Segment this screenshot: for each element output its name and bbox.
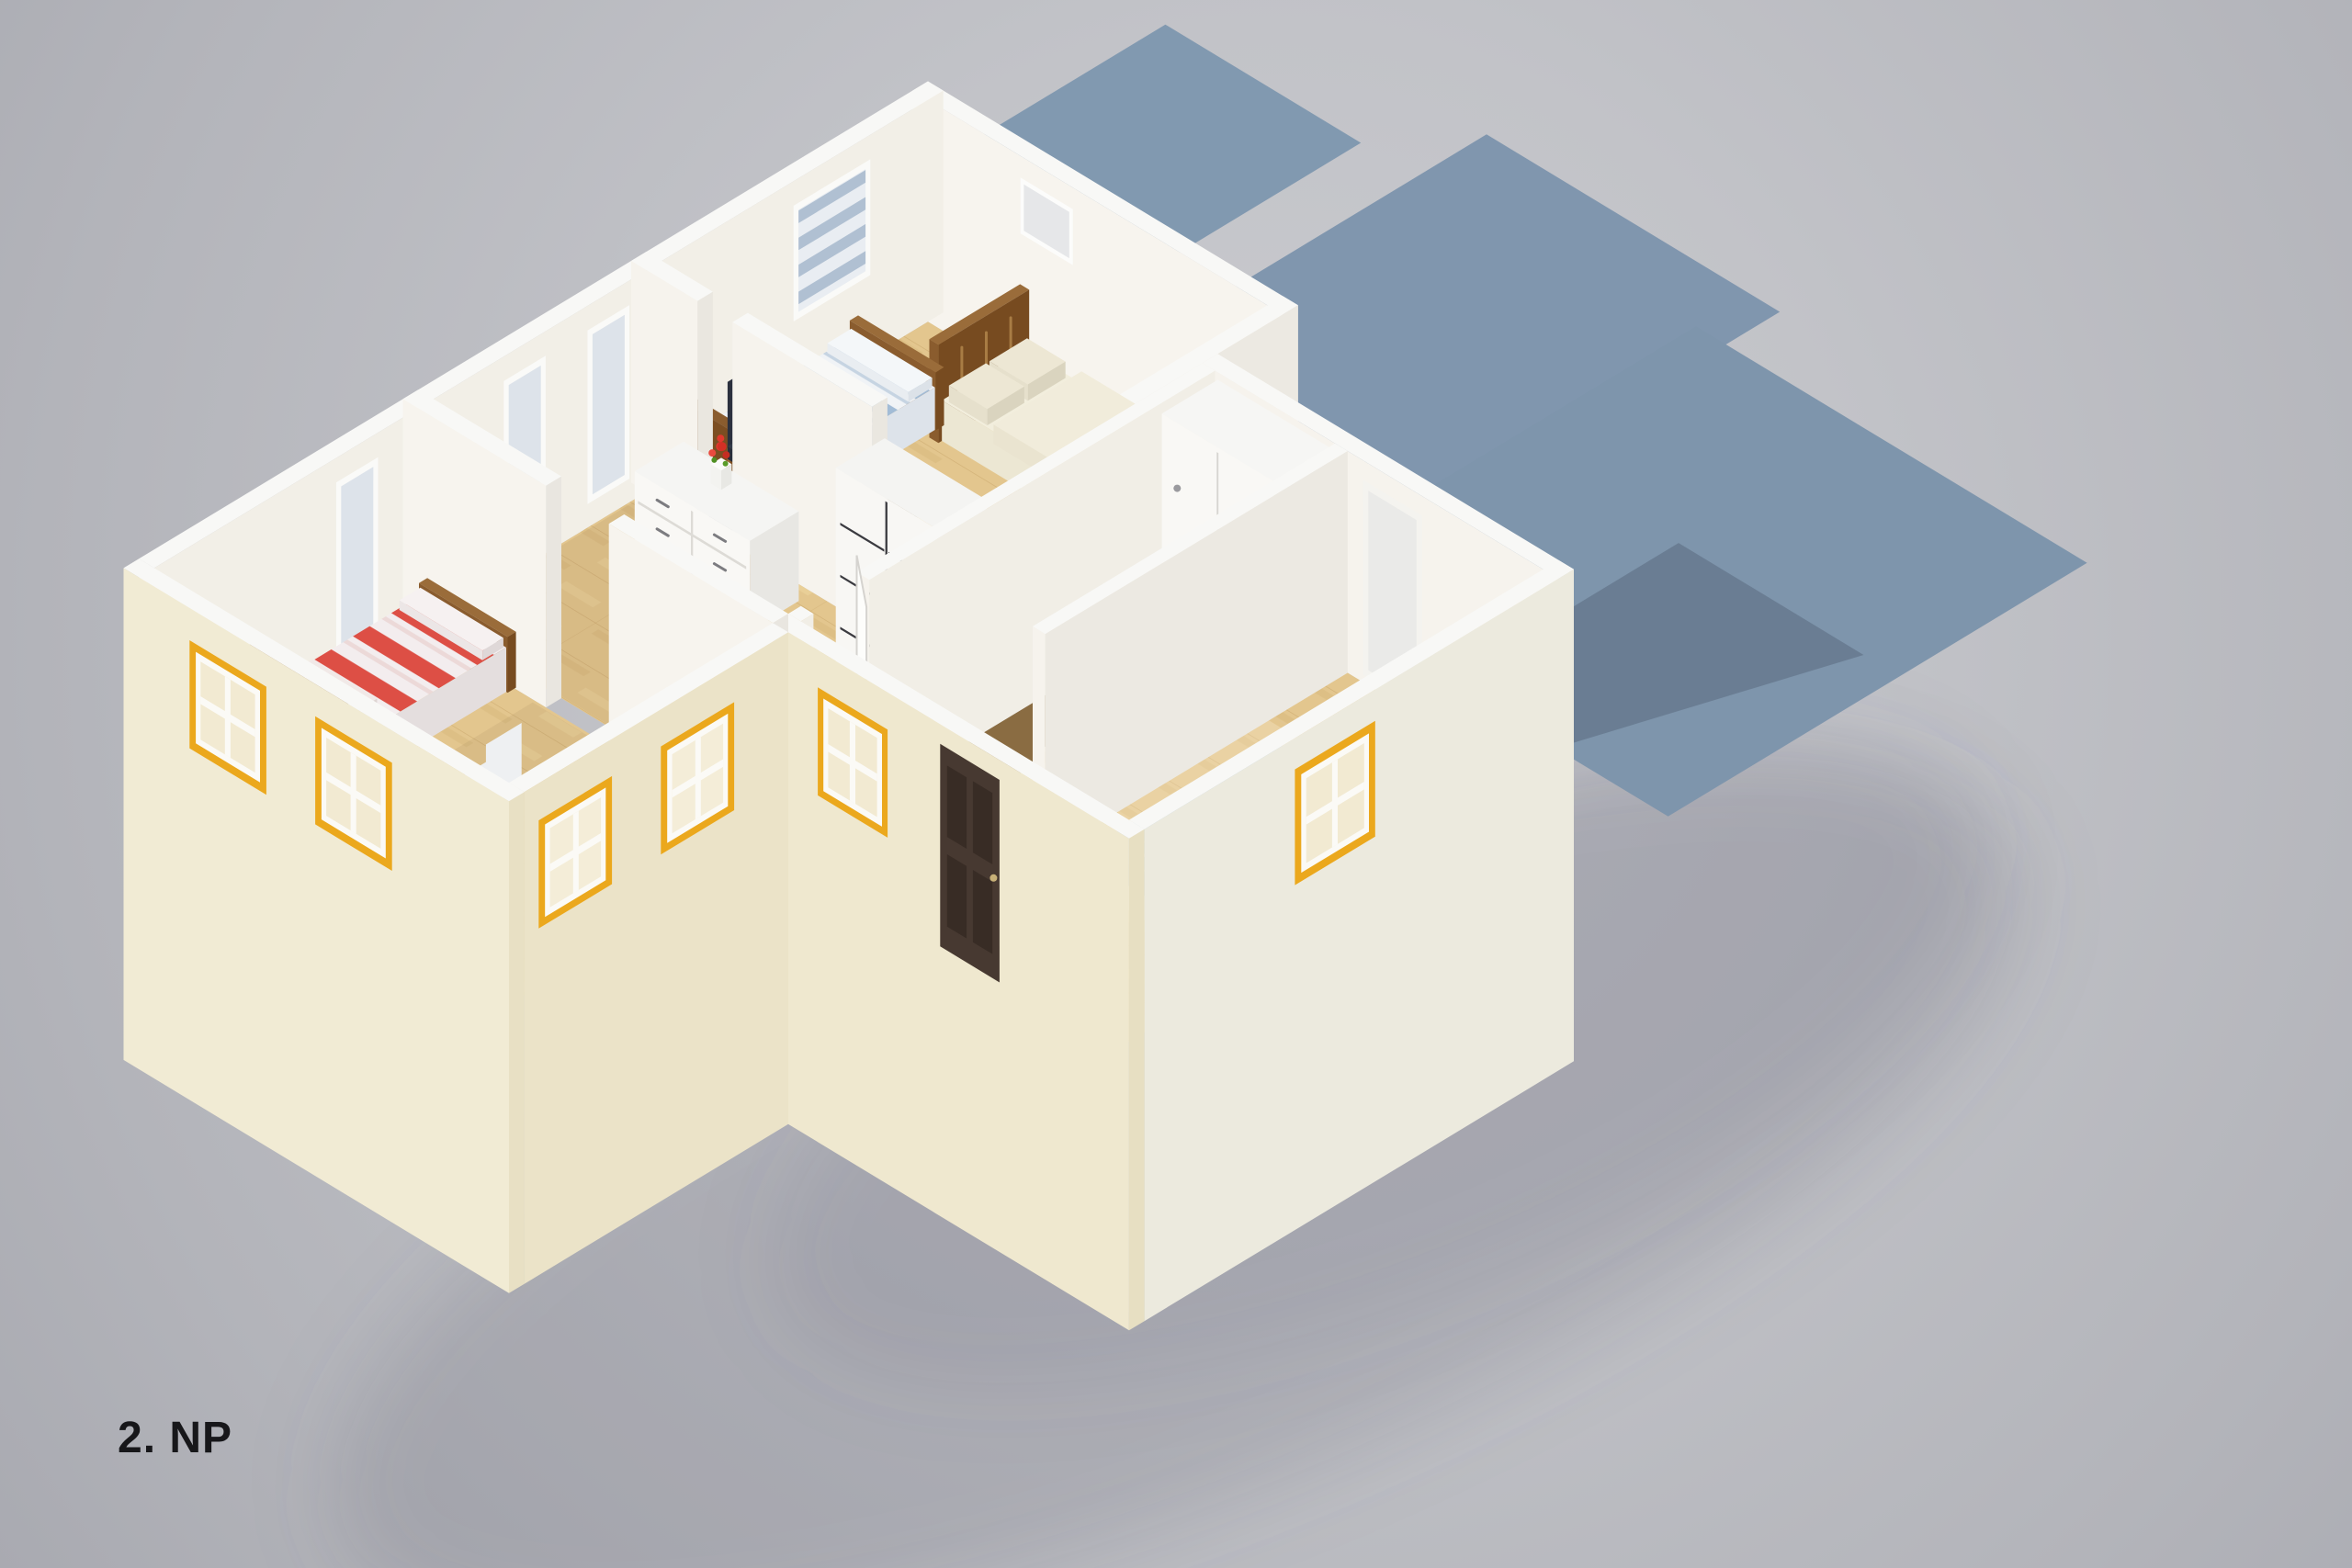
flower-leaf: [711, 457, 717, 463]
side-window-mullion: [695, 737, 701, 819]
master-window-mullion: [1332, 760, 1338, 848]
front-window-mullion: [351, 752, 356, 834]
tall-window-glass: [593, 315, 625, 495]
front-window-mullion: [225, 676, 231, 758]
flower-red: [718, 442, 727, 451]
flower-leaf: [723, 461, 729, 467]
entry-door-knob: [989, 874, 997, 882]
entry-door-panel: [973, 870, 992, 954]
entry-door-panel: [947, 854, 967, 939]
flower-red: [722, 451, 729, 458]
flower-red: [708, 449, 716, 457]
floorplan-stage: 2. NP: [0, 0, 2352, 1568]
floorplan-3d-render: [0, 0, 2352, 1568]
side-window-mullion: [573, 811, 579, 894]
floor-label: 2. NP: [118, 1413, 232, 1463]
flower-red: [717, 434, 724, 442]
coat-hook: [1173, 485, 1181, 492]
entry-door-panel: [973, 781, 992, 864]
entry-door-panel: [947, 765, 967, 849]
tall-window-glass: [341, 467, 373, 647]
hall-window-mullion: [850, 721, 855, 804]
